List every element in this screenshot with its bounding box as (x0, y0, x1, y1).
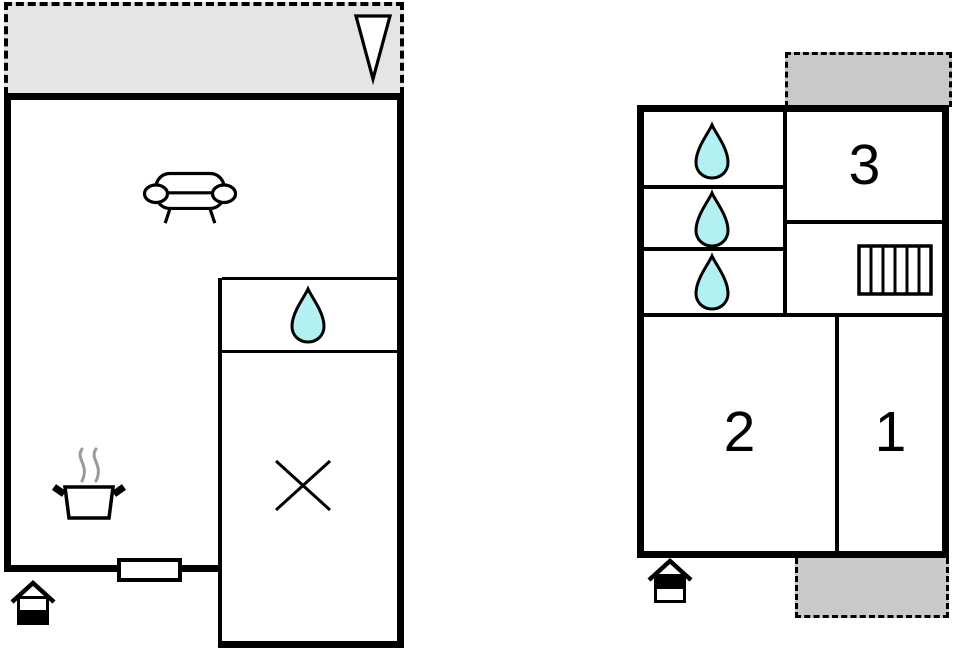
entrance-house-icon (9, 580, 57, 626)
balcony-area-top (785, 52, 952, 107)
wall (637, 105, 949, 112)
terrace-area (4, 2, 404, 95)
stove-pot-icon (50, 444, 128, 522)
water-drop-icon (694, 123, 730, 180)
wall (644, 185, 783, 189)
shower-x-icon (274, 459, 332, 512)
sofa-icon (144, 168, 236, 225)
wall (637, 551, 949, 558)
wall (218, 641, 404, 648)
water-drop-icon (694, 254, 730, 311)
room-label-1: 1 (839, 317, 942, 547)
wall (4, 565, 222, 572)
water-drop-icon (290, 287, 326, 344)
wall (787, 220, 942, 224)
wall (397, 93, 404, 648)
wall (637, 105, 644, 558)
water-drop-icon (694, 191, 730, 248)
entrance-arrow-icon (353, 13, 393, 83)
balcony-area-bottom (795, 558, 949, 618)
entrance-house-icon (646, 558, 694, 604)
wall (218, 278, 222, 648)
wall (942, 105, 949, 558)
wall (4, 93, 404, 100)
radiator-icon (857, 244, 933, 296)
room-label-2: 2 (644, 317, 835, 547)
room-label-3: 3 (787, 112, 942, 218)
wall (4, 93, 11, 572)
wall (222, 277, 397, 280)
floorplan-canvas: 3 2 1 (0, 0, 956, 652)
wall (222, 350, 397, 353)
door (117, 558, 182, 582)
